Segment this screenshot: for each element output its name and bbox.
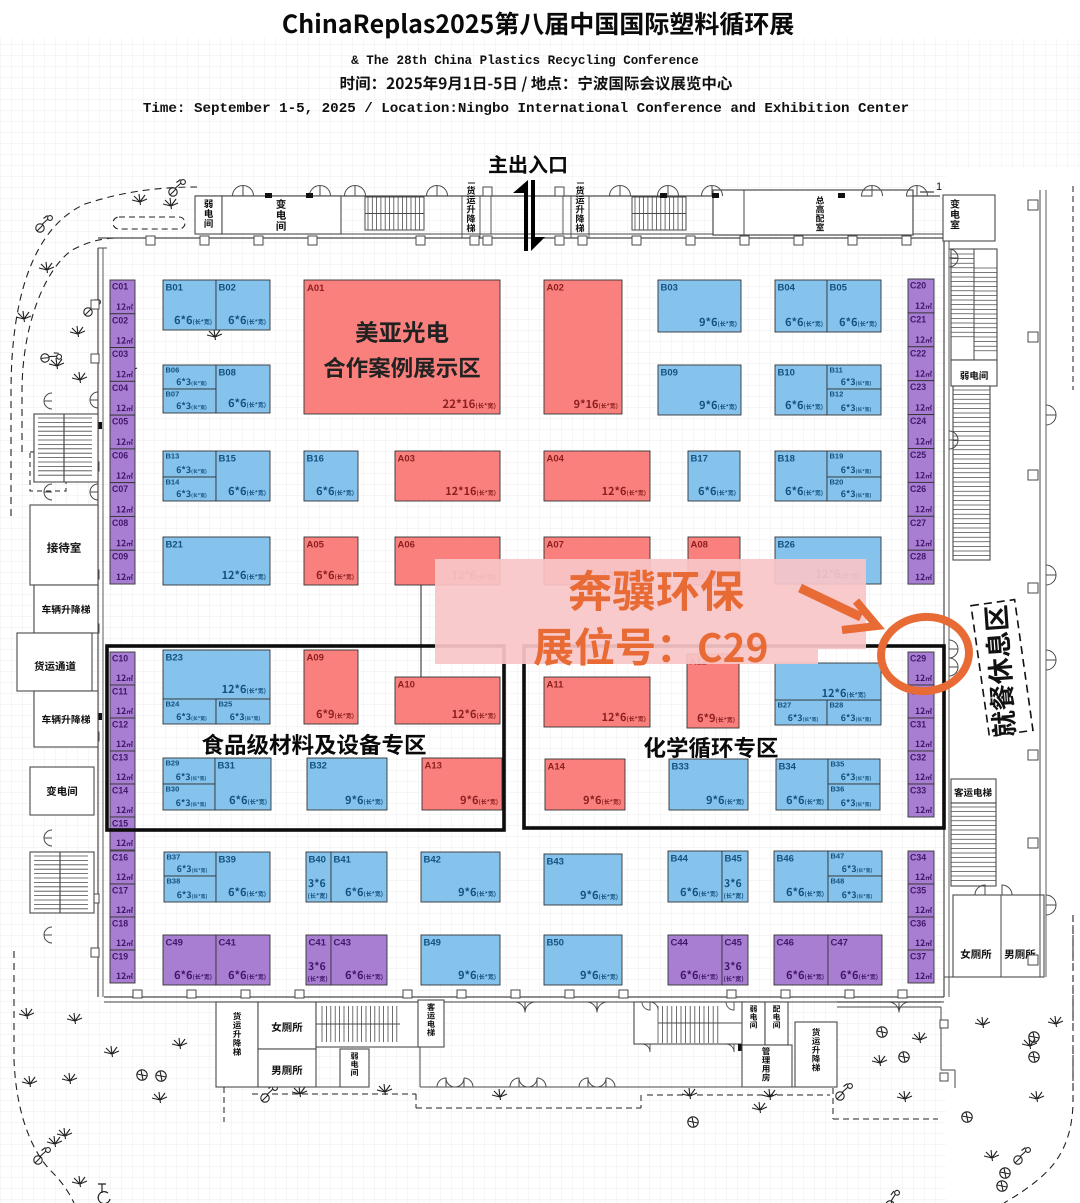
svg-text:B15: B15 [219,454,237,465]
svg-text:C02: C02 [112,315,128,325]
svg-text:C17: C17 [112,886,128,896]
svg-text:1: 1 [936,181,942,193]
svg-text:B13: B13 [166,452,180,461]
svg-text:B03: B03 [661,283,678,294]
svg-text:A13: A13 [425,761,442,772]
svg-text:C27: C27 [910,518,926,528]
svg-text:B41: B41 [334,855,352,866]
svg-text:B25: B25 [219,700,233,709]
svg-text:B33: B33 [672,762,689,773]
svg-text:B45: B45 [725,854,743,865]
svg-text:C13: C13 [112,753,128,763]
svg-text:C22: C22 [910,348,926,358]
svg-text:B28: B28 [830,701,844,710]
svg-text:C21: C21 [910,314,926,324]
svg-text:B21: B21 [166,540,184,551]
svg-text:B24: B24 [166,700,181,709]
svg-text:B30: B30 [166,785,180,794]
svg-text:C34: C34 [910,853,926,863]
svg-text:B40: B40 [309,855,326,866]
svg-text:B27: B27 [778,701,792,710]
svg-text:C23: C23 [910,382,926,392]
svg-text:B39: B39 [219,855,236,866]
svg-text:C07: C07 [112,484,128,494]
svg-text:C33: C33 [910,786,926,796]
svg-text:B01: B01 [166,283,184,294]
svg-text:C01: C01 [112,282,128,292]
svg-text:B31: B31 [218,761,236,772]
svg-text:C04: C04 [112,383,128,393]
svg-text:A11: A11 [547,680,565,691]
svg-text:B35: B35 [831,760,845,769]
svg-text:B44: B44 [671,854,689,865]
svg-text:C20: C20 [910,281,926,291]
svg-text:B08: B08 [219,368,236,379]
svg-text:C14: C14 [112,786,128,796]
svg-text:B46: B46 [777,854,794,865]
svg-text:C16: C16 [112,853,128,863]
svg-text:C06: C06 [112,450,128,460]
svg-text:B47: B47 [831,852,845,861]
svg-text:B36: B36 [831,785,845,794]
svg-text:C47: C47 [831,938,848,949]
svg-text:C41: C41 [309,938,327,949]
svg-text:A10: A10 [398,680,415,691]
svg-text:B02: B02 [219,283,236,294]
svg-text:C03: C03 [112,349,128,359]
svg-text:B48: B48 [831,877,845,886]
svg-text:C08: C08 [112,518,128,528]
svg-text:C15: C15 [112,819,128,829]
svg-text:C28: C28 [910,552,926,562]
svg-text:C35: C35 [910,886,926,896]
svg-text:B07: B07 [166,390,180,399]
svg-text:B10: B10 [778,368,795,379]
svg-text:B26: B26 [778,540,795,551]
svg-text:A03: A03 [398,454,415,465]
svg-text:A07: A07 [547,540,564,551]
svg-text:C44: C44 [671,938,689,949]
svg-text:C05: C05 [112,417,128,427]
svg-text:C36: C36 [910,919,926,929]
svg-text:C25: C25 [910,450,926,460]
svg-text:C43: C43 [334,938,351,949]
svg-text:A06: A06 [398,540,415,551]
svg-text:C29: C29 [910,654,926,664]
svg-text:C24: C24 [910,416,926,426]
svg-text:A08: A08 [691,540,708,551]
svg-text:B43: B43 [547,857,564,868]
svg-text:C10: C10 [112,654,128,664]
svg-text:B50: B50 [547,938,564,949]
svg-text:B20: B20 [830,478,844,487]
svg-text:A05: A05 [307,540,325,551]
svg-text:B38: B38 [167,877,181,886]
svg-text:B06: B06 [166,366,180,375]
svg-text:B49: B49 [424,938,441,949]
svg-text:B04: B04 [778,283,796,294]
svg-text:C26: C26 [910,484,926,494]
svg-text:B29: B29 [166,759,180,768]
svg-text:B34: B34 [779,762,797,773]
svg-text:B17: B17 [691,454,708,465]
svg-text:C41: C41 [219,938,237,949]
svg-text:C09: C09 [112,552,128,562]
svg-text:A14: A14 [548,762,566,773]
svg-text:B37: B37 [167,853,181,862]
svg-text:C19: C19 [112,952,128,962]
svg-text:B42: B42 [424,855,441,866]
svg-text:B11: B11 [830,366,843,375]
svg-text:C31: C31 [910,720,926,730]
svg-text:B05: B05 [830,283,848,294]
svg-text:C11: C11 [112,687,128,697]
svg-text:C12: C12 [112,720,128,730]
svg-text:A04: A04 [547,454,565,465]
svg-text:& The 28th China Plastics Recy: & The 28th China Plastics Recycling Conf… [351,54,699,68]
svg-text:B19: B19 [830,452,844,461]
svg-text:B18: B18 [778,454,795,465]
svg-text:Time: September 1-5, 2025 / Lo: Time: September 1-5, 2025 / Location:Nin… [143,101,909,117]
svg-text:C18: C18 [112,919,128,929]
svg-text:B32: B32 [310,761,327,772]
svg-text:A02: A02 [547,283,564,294]
svg-text:C32: C32 [910,753,926,763]
svg-text:C49: C49 [166,938,183,949]
svg-text:B16: B16 [307,454,324,465]
svg-text:A01: A01 [307,283,325,294]
svg-text:B09: B09 [661,368,678,379]
svg-text:B12: B12 [830,390,844,399]
svg-text:A09: A09 [307,653,324,664]
svg-text:B14: B14 [166,478,181,487]
svg-text:C46: C46 [777,938,794,949]
svg-text:C37: C37 [910,952,926,962]
svg-text:B23: B23 [166,653,183,664]
svg-text:C45: C45 [725,938,743,949]
